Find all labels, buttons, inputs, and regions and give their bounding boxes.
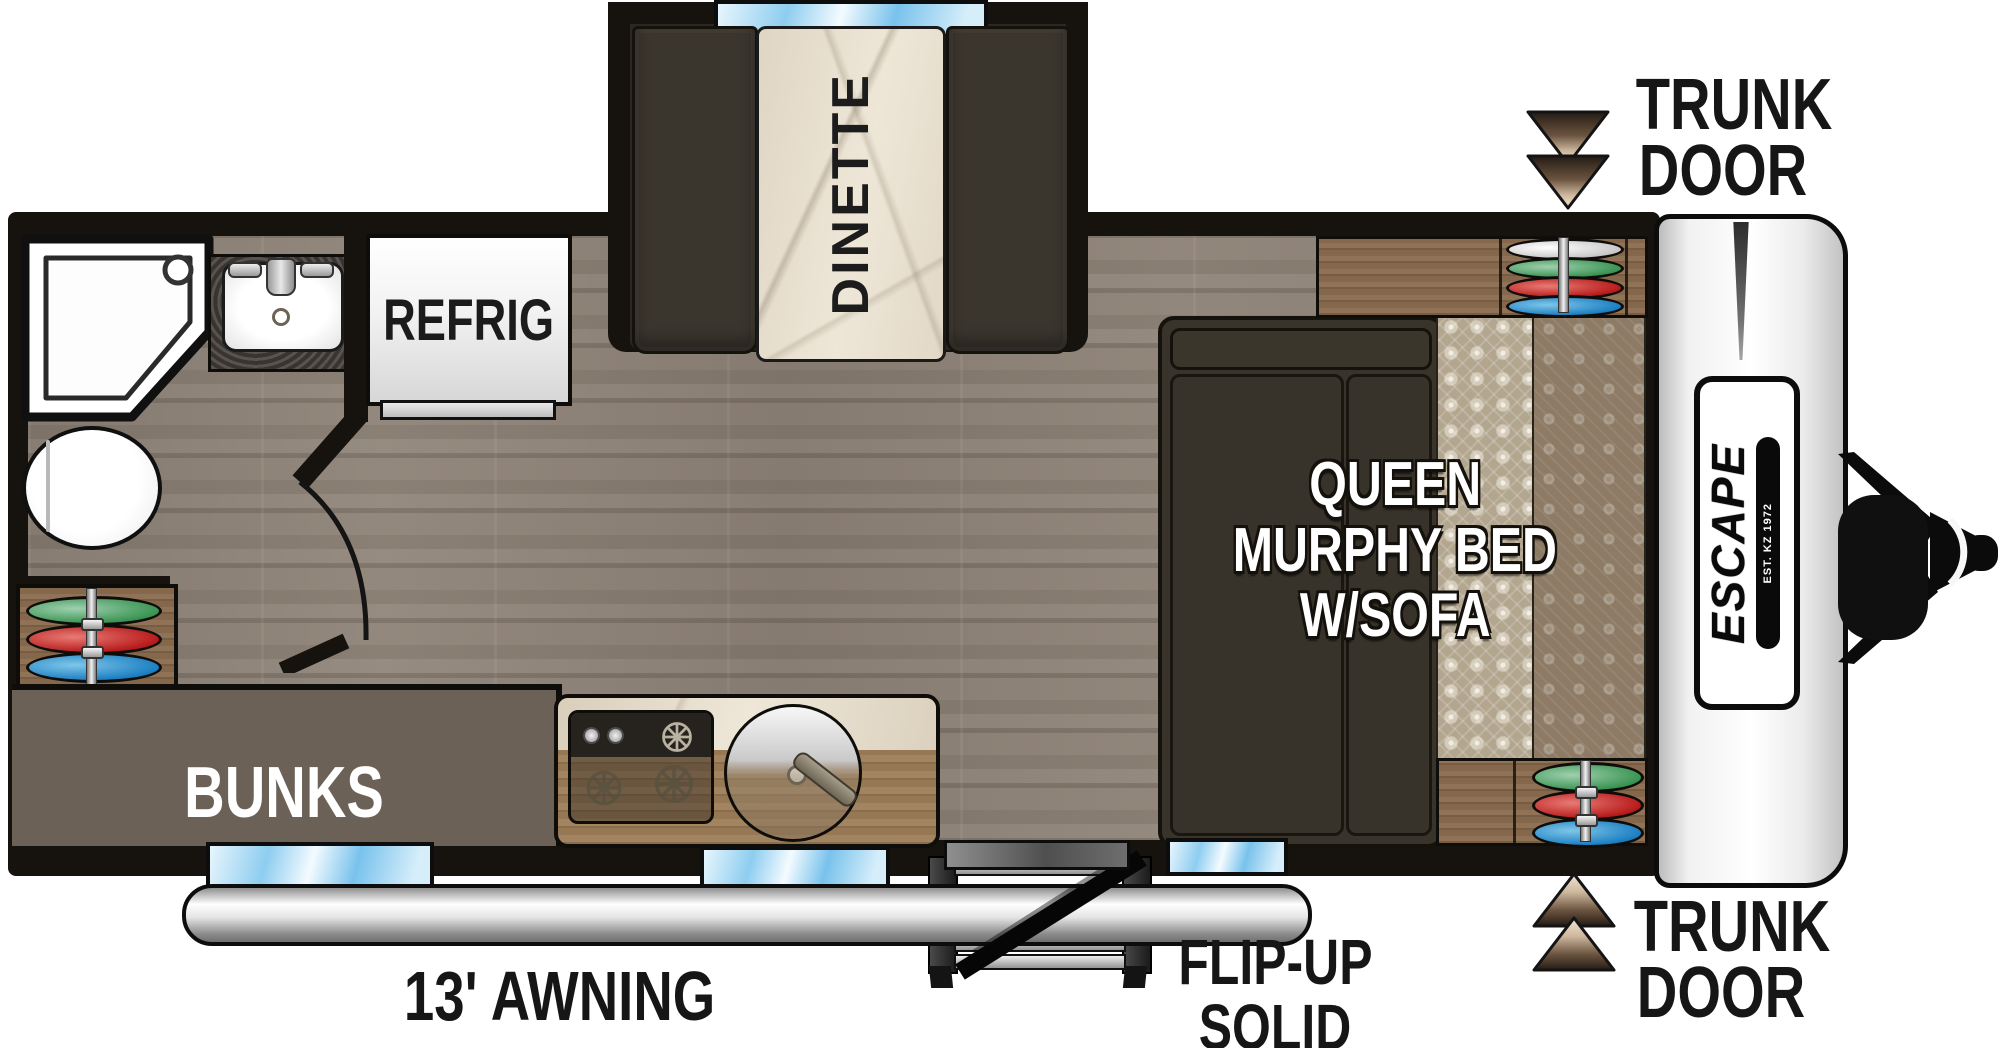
cabinet-seam xyxy=(1499,239,1502,315)
stove-knob-icon xyxy=(607,727,624,744)
arrow-up-icon xyxy=(1532,872,1616,972)
door-word: DOOR xyxy=(1639,138,1807,204)
bunks: BUNKS xyxy=(12,684,562,846)
refrigerator-vent xyxy=(380,400,556,420)
trunk-door-label-bottom: TRUNK DOOR xyxy=(1606,894,1836,1026)
flip-up-step-platform xyxy=(944,840,1130,870)
steps-line2: SOLID STEPS xyxy=(1115,995,1435,1048)
dinette-bench-left xyxy=(632,26,758,354)
dinette-bench-right xyxy=(946,26,1070,354)
brand-name: ESCAPE xyxy=(1700,390,1756,696)
rod-collar xyxy=(81,646,104,659)
faucet-handle-right-icon xyxy=(300,262,334,278)
rod-collar xyxy=(1575,786,1598,799)
bathroom-wall xyxy=(344,234,368,422)
dinette-label: DINETTE xyxy=(821,72,881,315)
steps-line1: FLIP-UP xyxy=(1178,930,1372,995)
brand-established: EST. KZ 1972 xyxy=(1762,503,1774,583)
escape-brand-badge: ESCAPE EST. KZ 1972 xyxy=(1694,376,1800,710)
awning-text: 13' AWNING xyxy=(404,956,715,1036)
cabinet-seam xyxy=(1513,761,1516,843)
trunk-word: TRUNK xyxy=(1634,894,1831,960)
rod-collar xyxy=(81,618,104,631)
trunk-door-label-top: TRUNK DOOR xyxy=(1608,72,1838,204)
wardrobe-rod-icon xyxy=(1558,237,1569,313)
rv-floorplan: DINETTE REFRIG BUNKS xyxy=(0,0,2000,1048)
rod-collar xyxy=(1575,814,1598,827)
refrigerator: REFRIG xyxy=(366,234,572,406)
range-stove xyxy=(568,710,714,824)
shower xyxy=(20,234,214,422)
bathroom-door xyxy=(238,408,383,673)
burner-icon xyxy=(583,767,625,809)
toilet xyxy=(22,426,162,550)
kitchen-sink xyxy=(724,704,862,842)
bunks-label: BUNKS xyxy=(184,690,384,834)
shower-drain-icon xyxy=(165,257,191,283)
a-frame-hitch xyxy=(1838,452,2000,664)
refrigerator-label: REFRIG xyxy=(384,287,555,354)
hitch-coupler-icon xyxy=(1964,535,1998,571)
cabinet-seam xyxy=(1625,239,1628,315)
bathroom-faucet-icon xyxy=(266,258,296,296)
murphy-line3: W/SOFA xyxy=(1300,583,1491,649)
sofa-back-bolster xyxy=(1170,328,1432,370)
sink-drain-icon xyxy=(272,308,290,326)
stove-knob-icon xyxy=(583,727,600,744)
murphy-line2: MURPHY BED xyxy=(1233,518,1557,584)
burner-icon xyxy=(659,719,695,755)
door-word: DOOR xyxy=(1637,960,1805,1026)
wardrobe-rod-icon xyxy=(86,588,97,686)
burner-icon xyxy=(651,761,697,807)
dinette-table: DINETTE xyxy=(756,26,946,362)
awning-label: 13' AWNING xyxy=(320,956,800,1036)
bedroom-window xyxy=(1166,838,1288,876)
murphy-bed-label: QUEEN MURPHY BED W/SOFA xyxy=(1170,452,1620,649)
step-foot xyxy=(929,966,953,988)
wardrobe-rod-icon xyxy=(1580,760,1591,842)
murphy-line1: QUEEN xyxy=(1309,452,1481,518)
bunks-window xyxy=(206,842,434,890)
steps-label: FLIP-UP SOLID STEPS xyxy=(1070,930,1480,1048)
faucet-handle-left-icon xyxy=(228,262,262,278)
trunk-word: TRUNK xyxy=(1636,72,1833,138)
brand-est-pill: EST. KZ 1972 xyxy=(1756,437,1780,649)
arrow-down-icon xyxy=(1526,110,1610,210)
door-swing-arc xyxy=(300,482,366,640)
toilet-tank-seam xyxy=(46,440,50,532)
